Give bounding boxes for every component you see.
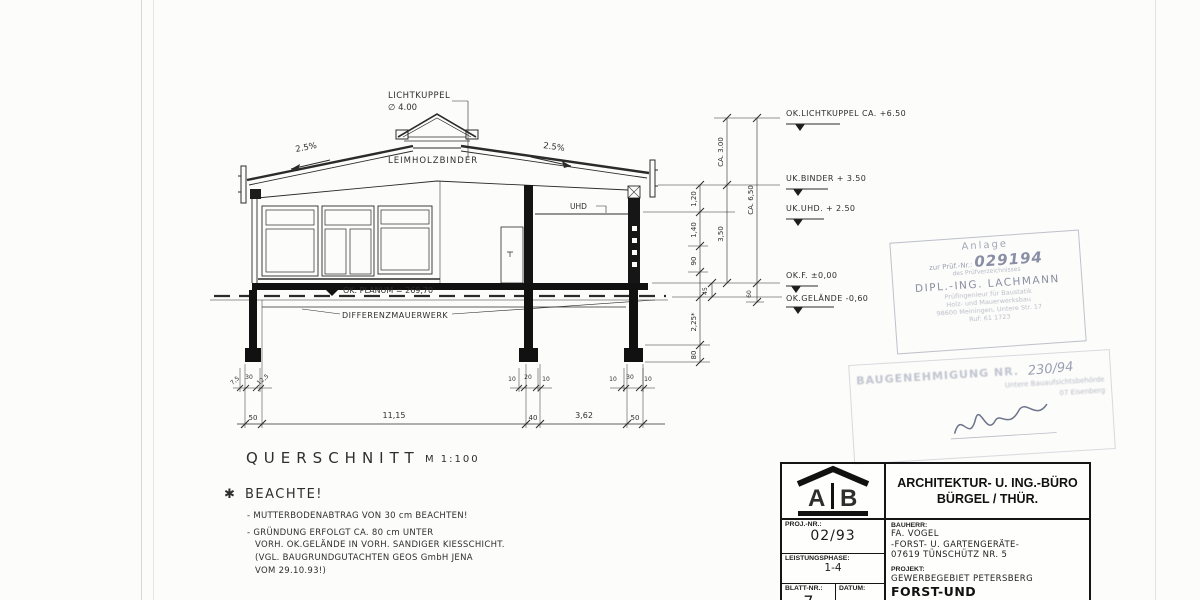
signature bbox=[947, 399, 1069, 442]
uhd-label: UHD bbox=[570, 202, 587, 211]
note-line: VOM 29.10.93!) bbox=[255, 566, 326, 576]
note-line: VORH. OK.GELÄNDE IN VORH. SANDIGER KIESS… bbox=[255, 539, 505, 550]
bauherr-line: -FORST- U. GARTENGERÄTE- bbox=[891, 540, 1084, 551]
logo-roof bbox=[798, 469, 868, 484]
bauherr-label: BAUHERR: bbox=[891, 522, 1084, 529]
logo-letter-a: A bbox=[808, 485, 825, 512]
footdim: 10 bbox=[508, 376, 516, 383]
projekt-line2: FORST-UND GARTENCENTER bbox=[891, 584, 1084, 600]
bauherr-line: 07619 TÜNSCHÜTZ NR. 5 bbox=[891, 550, 1084, 561]
office-name-line2: BÜRGEL / THÜR. bbox=[937, 491, 1038, 507]
level-uhd: UK.UHD. + 2.50 bbox=[786, 204, 855, 213]
leistungsphase-value: 1-4 bbox=[785, 562, 881, 574]
footdim: 10 bbox=[609, 376, 617, 383]
foundation-right bbox=[629, 290, 638, 348]
window-panel bbox=[378, 206, 432, 274]
level-lichtkuppel: OK.LICHTKUPPEL CA. +6.50 bbox=[786, 109, 906, 118]
office-name-line1: ARCHITEKTUR- U. ING.-BÜRO bbox=[897, 475, 1078, 491]
note-line: - MUTTERBODENABTRAG VON 30 cm BEACHTEN! bbox=[247, 511, 468, 521]
slope-right-label: 2.5% bbox=[543, 141, 566, 154]
note-line: (VGL. BAUGRUNDGUTACHTEN GEOS GmbH JENA bbox=[255, 553, 473, 563]
baugenehmigung-stamp: BAUGENEHMIGUNG NR. 230/94 Untere Bauaufs… bbox=[848, 349, 1116, 465]
note-asterisk: ✱ bbox=[224, 487, 235, 502]
office-logo: A B bbox=[782, 464, 886, 518]
blatt-nr-label: BLATT-NR.: bbox=[785, 585, 832, 592]
foundation-middle bbox=[524, 290, 533, 348]
projekt-line1: GEWERBEGEBIET PETERSBERG bbox=[891, 574, 1084, 584]
dim-span-11-15: 11,15 bbox=[383, 411, 406, 420]
level-gelaende: OK.GELÄNDE -0,60 bbox=[786, 293, 868, 303]
footdim: 10 bbox=[542, 376, 550, 383]
proj-nr-value: 02/93 bbox=[785, 528, 881, 544]
dim-2-25: 2,25* bbox=[690, 312, 698, 332]
note-heading: BEACHTE! bbox=[245, 487, 323, 502]
footdim: 10 bbox=[644, 376, 652, 383]
dim-1-40: 1,40 bbox=[690, 222, 698, 238]
floor-slab bbox=[252, 283, 648, 290]
eave-bracket-right bbox=[650, 160, 655, 197]
slope-left-label: 2.5% bbox=[295, 141, 318, 155]
planum-label: OK. PLANUM = 269,70 bbox=[343, 286, 433, 295]
footdim: 30 bbox=[245, 374, 253, 381]
section-scale: M 1:100 bbox=[425, 454, 480, 465]
footdim: 7,5 bbox=[229, 375, 241, 387]
footdim: 12,5 bbox=[256, 373, 271, 387]
skylight-label: LICHTKUPPEL bbox=[388, 91, 450, 101]
datum-label: DATUM: bbox=[839, 585, 881, 592]
dim-ca-3-00: CA. 3.00 bbox=[717, 137, 725, 167]
column-middle bbox=[524, 185, 533, 283]
scanned-drawing-page: LICHTKUPPEL ∅ 4.00 2.5% 2.5% LEIMHOLZBIN… bbox=[0, 0, 1200, 600]
footdim: 30 bbox=[626, 374, 634, 381]
dim-1-20: 1,20 bbox=[690, 191, 698, 207]
dim-60: 60 bbox=[746, 290, 753, 298]
dim-90: 90 bbox=[690, 257, 698, 266]
proj-nr-label: PROJ.-NR.: bbox=[785, 521, 881, 528]
logo-letter-b: B bbox=[840, 485, 857, 512]
dim-left-50: 50 bbox=[249, 414, 258, 422]
ab-logo: A B bbox=[795, 465, 871, 517]
blatt-nr-value: 7 bbox=[785, 592, 832, 600]
level-binder: UK.BINDER + 3.50 bbox=[786, 174, 866, 183]
differenzmauerwerk-label: DIFFERENZMAUERWERK bbox=[342, 311, 448, 320]
dim-3-50: 3,50 bbox=[717, 226, 725, 242]
dim-45: 45 bbox=[702, 287, 709, 295]
vertical-dimension-chains bbox=[700, 118, 757, 362]
section-title: QUERSCHNITT bbox=[246, 449, 420, 467]
wall-left bbox=[252, 198, 257, 283]
leistungsphase-label: LEISTUNGSPHASE: bbox=[785, 555, 881, 562]
bauherr-line: FA. VOGEL bbox=[891, 529, 1084, 540]
door-panel bbox=[322, 206, 374, 276]
title-block: A B ARCHITEKTUR- U. ING.-BÜRO BÜRGEL / T… bbox=[780, 462, 1091, 600]
level-floor: OK.F. ±0,00 bbox=[786, 271, 837, 280]
dim-40: 40 bbox=[529, 414, 538, 422]
foundation-left bbox=[249, 290, 257, 348]
projekt-label: PROJEKT: bbox=[891, 566, 1084, 573]
chain-ticks bbox=[696, 114, 761, 366]
pruef-stamp: Anlage zur Prüf.-Nr.: 029194 des Prüfver… bbox=[889, 230, 1086, 355]
roof-bottom-chord bbox=[257, 181, 628, 198]
dim-80: 80 bbox=[690, 351, 698, 360]
dim-right-50: 50 bbox=[631, 414, 640, 422]
interior-door bbox=[501, 227, 523, 283]
eave-bracket-left bbox=[241, 166, 246, 203]
skylight-diameter: ∅ 4.00 bbox=[388, 103, 417, 113]
binder-label: LEIMHOLZBINDER bbox=[388, 156, 478, 166]
note-line: - GRÜNDUNG ERFOLGT CA. 80 cm UNTER bbox=[247, 527, 433, 538]
stamp-bau-number: 230/94 bbox=[1027, 360, 1074, 379]
dim-ca-6-50: CA. 6,50 bbox=[747, 185, 755, 215]
dim-3-62: 3,62 bbox=[575, 411, 593, 420]
window-panel bbox=[262, 206, 318, 276]
footdim: 20 bbox=[524, 374, 532, 381]
